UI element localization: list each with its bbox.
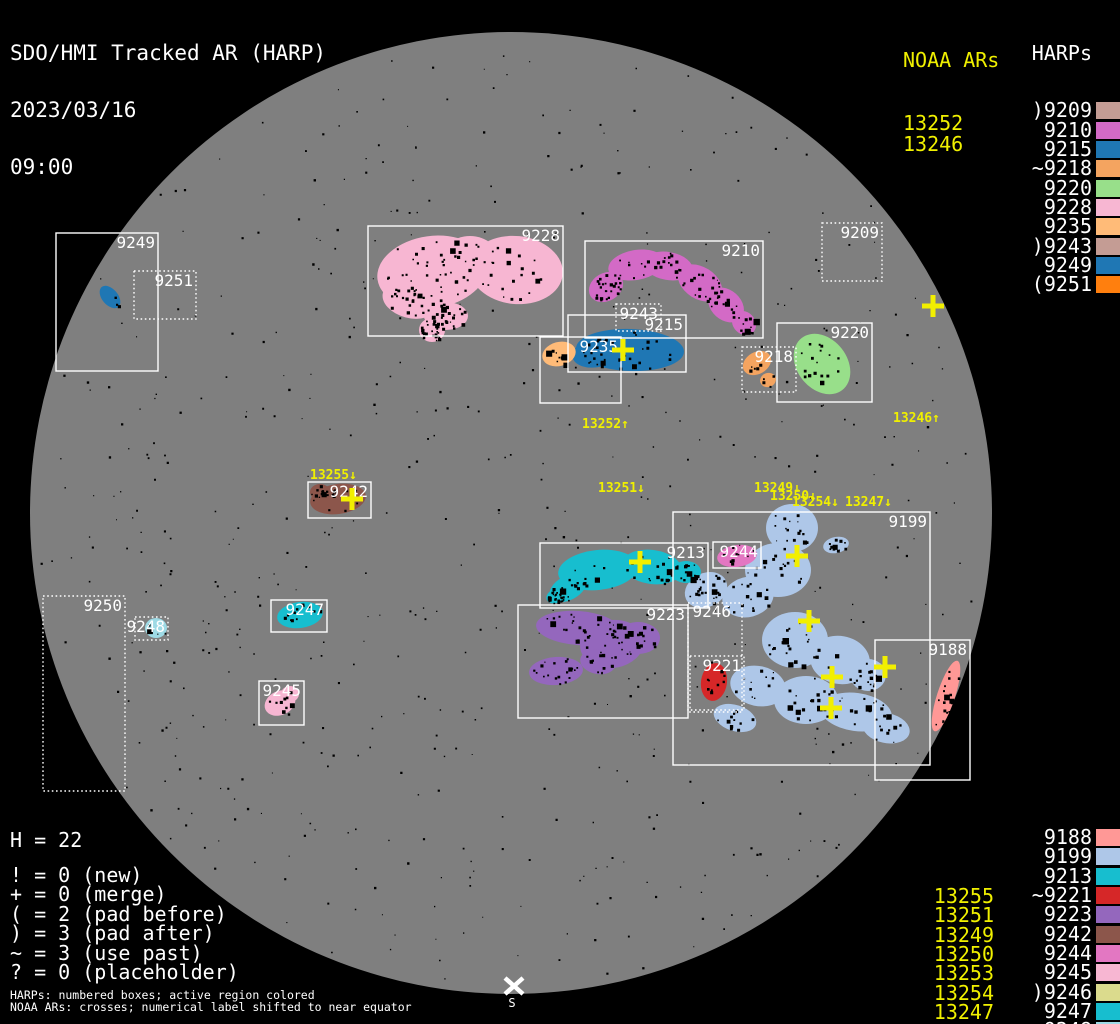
harp-number-label: (9251: [1018, 275, 1092, 294]
color-swatch: [1096, 1003, 1120, 1020]
color-swatch: [1096, 180, 1120, 197]
harps-legend-title: HARPs: [1018, 44, 1092, 63]
plot-title: SDO/HMI Tracked AR (HARP): [10, 44, 326, 63]
footnotes: HARPs: numbered boxes; active region col…: [10, 990, 412, 1013]
color-swatch: [1096, 984, 1120, 1001]
color-swatch: [1096, 122, 1120, 139]
harp-box-label-9235: 9235: [579, 337, 618, 356]
noaa-label: 13254↓: [792, 495, 839, 510]
harps-legend-title-row: HARPs: [1018, 44, 1120, 63]
color-swatch: [1096, 141, 1120, 158]
color-swatch: [1096, 868, 1120, 885]
color-swatch: [1096, 829, 1120, 846]
color-swatch: [1096, 102, 1120, 119]
legend-row-9251: (9251: [1018, 275, 1120, 294]
color-swatch: [1096, 848, 1120, 865]
harp-box-label-9250: 9250: [83, 596, 122, 615]
color-swatch: [1096, 218, 1120, 235]
noaa-ar-number: 13247: [926, 1003, 994, 1022]
south-pole-label: S: [508, 996, 515, 1010]
harp-box-label-9228: 9228: [521, 226, 560, 245]
harps-legend-bottom: 918891999213~92219223924292449245)924692…: [1018, 790, 1120, 1024]
harp-box-label-9246: 9246: [692, 602, 731, 621]
noaa-label: 13246↑: [893, 411, 940, 426]
color-swatch: [1096, 964, 1120, 981]
harp-box-label-9223: 9223: [646, 605, 685, 624]
symbol-legend: ! = 0 (new)+ = 0 (merge)( = 2 (pad befor…: [10, 866, 239, 982]
harp-box-label-9245: 9245: [262, 681, 301, 700]
harp-box-label-9244: 9244: [719, 542, 758, 561]
plot-time: 09:00: [10, 158, 326, 177]
color-swatch: [1096, 926, 1120, 943]
harps-legend-top: HARPs )920992109215~9218922092289235)924…: [1018, 6, 1120, 333]
noaa-ar-number: 13252: [903, 113, 999, 134]
region-lobe: [440, 236, 500, 288]
noaa-label: 13255↓: [310, 468, 357, 483]
color-swatch: [1096, 257, 1120, 274]
harp-box-label-9221: 9221: [702, 656, 741, 675]
color-swatch: [1096, 887, 1120, 904]
symbol-legend-line: ? = 0 (placeholder): [10, 963, 239, 982]
footnote-line: NOAA ARs: crosses; numerical label shift…: [10, 1002, 412, 1014]
noaa-label: 13251↓: [598, 481, 645, 496]
harp-box-label-9210: 9210: [721, 241, 760, 260]
harp-box-label-9251: 9251: [154, 271, 193, 290]
noaa-legend-bottom: 13255132511324913250132531325413247: [926, 887, 994, 1022]
harp-tracker-plot: 9188919992099210921392159218922092219223…: [0, 0, 1120, 1024]
harp-box-label-9248: 9248: [126, 617, 165, 636]
harp-count: H = 22: [10, 828, 82, 852]
noaa-ar-number: 13246: [903, 134, 999, 155]
harp-box-label-9243: 9243: [619, 304, 658, 323]
harp-box-label-9247: 9247: [285, 600, 324, 619]
harps-legend-top-items: )920992109215~9218922092289235)92439249(…: [1018, 101, 1120, 294]
color-swatch: [1096, 906, 1120, 923]
noaa-legend-title: NOAA ARs: [903, 50, 999, 71]
harp-box-label-9188: 9188: [928, 640, 967, 659]
noaa-legend-top-items: 1325213246: [903, 113, 999, 155]
color-swatch: [1096, 160, 1120, 177]
harp-box-label-9213: 9213: [666, 543, 705, 562]
harp-box-label-9209: 9209: [840, 223, 879, 242]
noaa-label: 13247↓: [845, 495, 892, 510]
harp-box-label-9218: 9218: [754, 347, 793, 366]
harp-box-label-9249: 9249: [116, 233, 155, 252]
color-swatch: [1096, 276, 1120, 293]
harp-box-label-9220: 9220: [830, 323, 869, 342]
noaa-legend-top: NOAA ARs 1325213246: [903, 8, 999, 197]
region-lobe: [850, 659, 886, 691]
color-swatch: [1096, 238, 1120, 255]
harp-box-label-9199: 9199: [888, 512, 927, 531]
plot-date: 2023/03/16: [10, 101, 326, 120]
color-swatch: [1096, 945, 1120, 962]
color-swatch: [1096, 199, 1120, 216]
harps-legend-bottom-items: 918891999213~92219223924292449245)924692…: [1018, 828, 1120, 1024]
title-block: SDO/HMI Tracked AR (HARP) 2023/03/16 09:…: [10, 6, 326, 215]
noaa-label: 13252↑: [582, 417, 629, 432]
